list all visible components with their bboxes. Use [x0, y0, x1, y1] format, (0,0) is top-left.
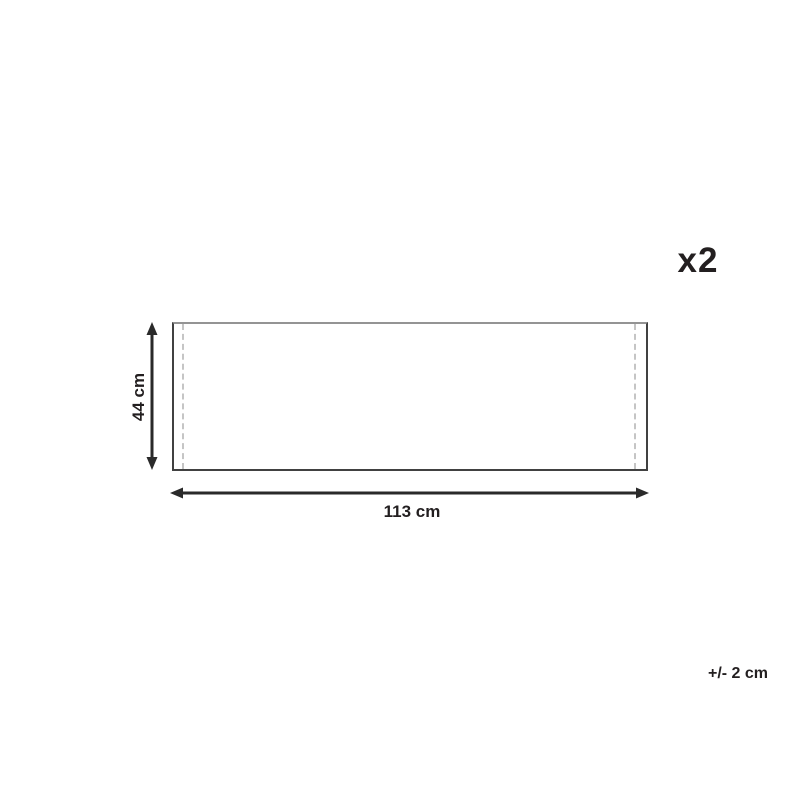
dimension-diagram: x2 44 cm 113 cm +/- 2 cm: [0, 0, 800, 800]
seam-line-left: [182, 324, 184, 469]
width-dimension-label: 113 cm: [362, 502, 462, 522]
product-outline-rect: [172, 322, 648, 471]
width-dimension-arrow-icon: [169, 484, 650, 502]
height-dimension-label: 44 cm: [129, 347, 149, 447]
quantity-label: x2: [648, 238, 748, 284]
seam-line-right: [634, 324, 636, 469]
tolerance-label: +/- 2 cm: [688, 665, 788, 683]
